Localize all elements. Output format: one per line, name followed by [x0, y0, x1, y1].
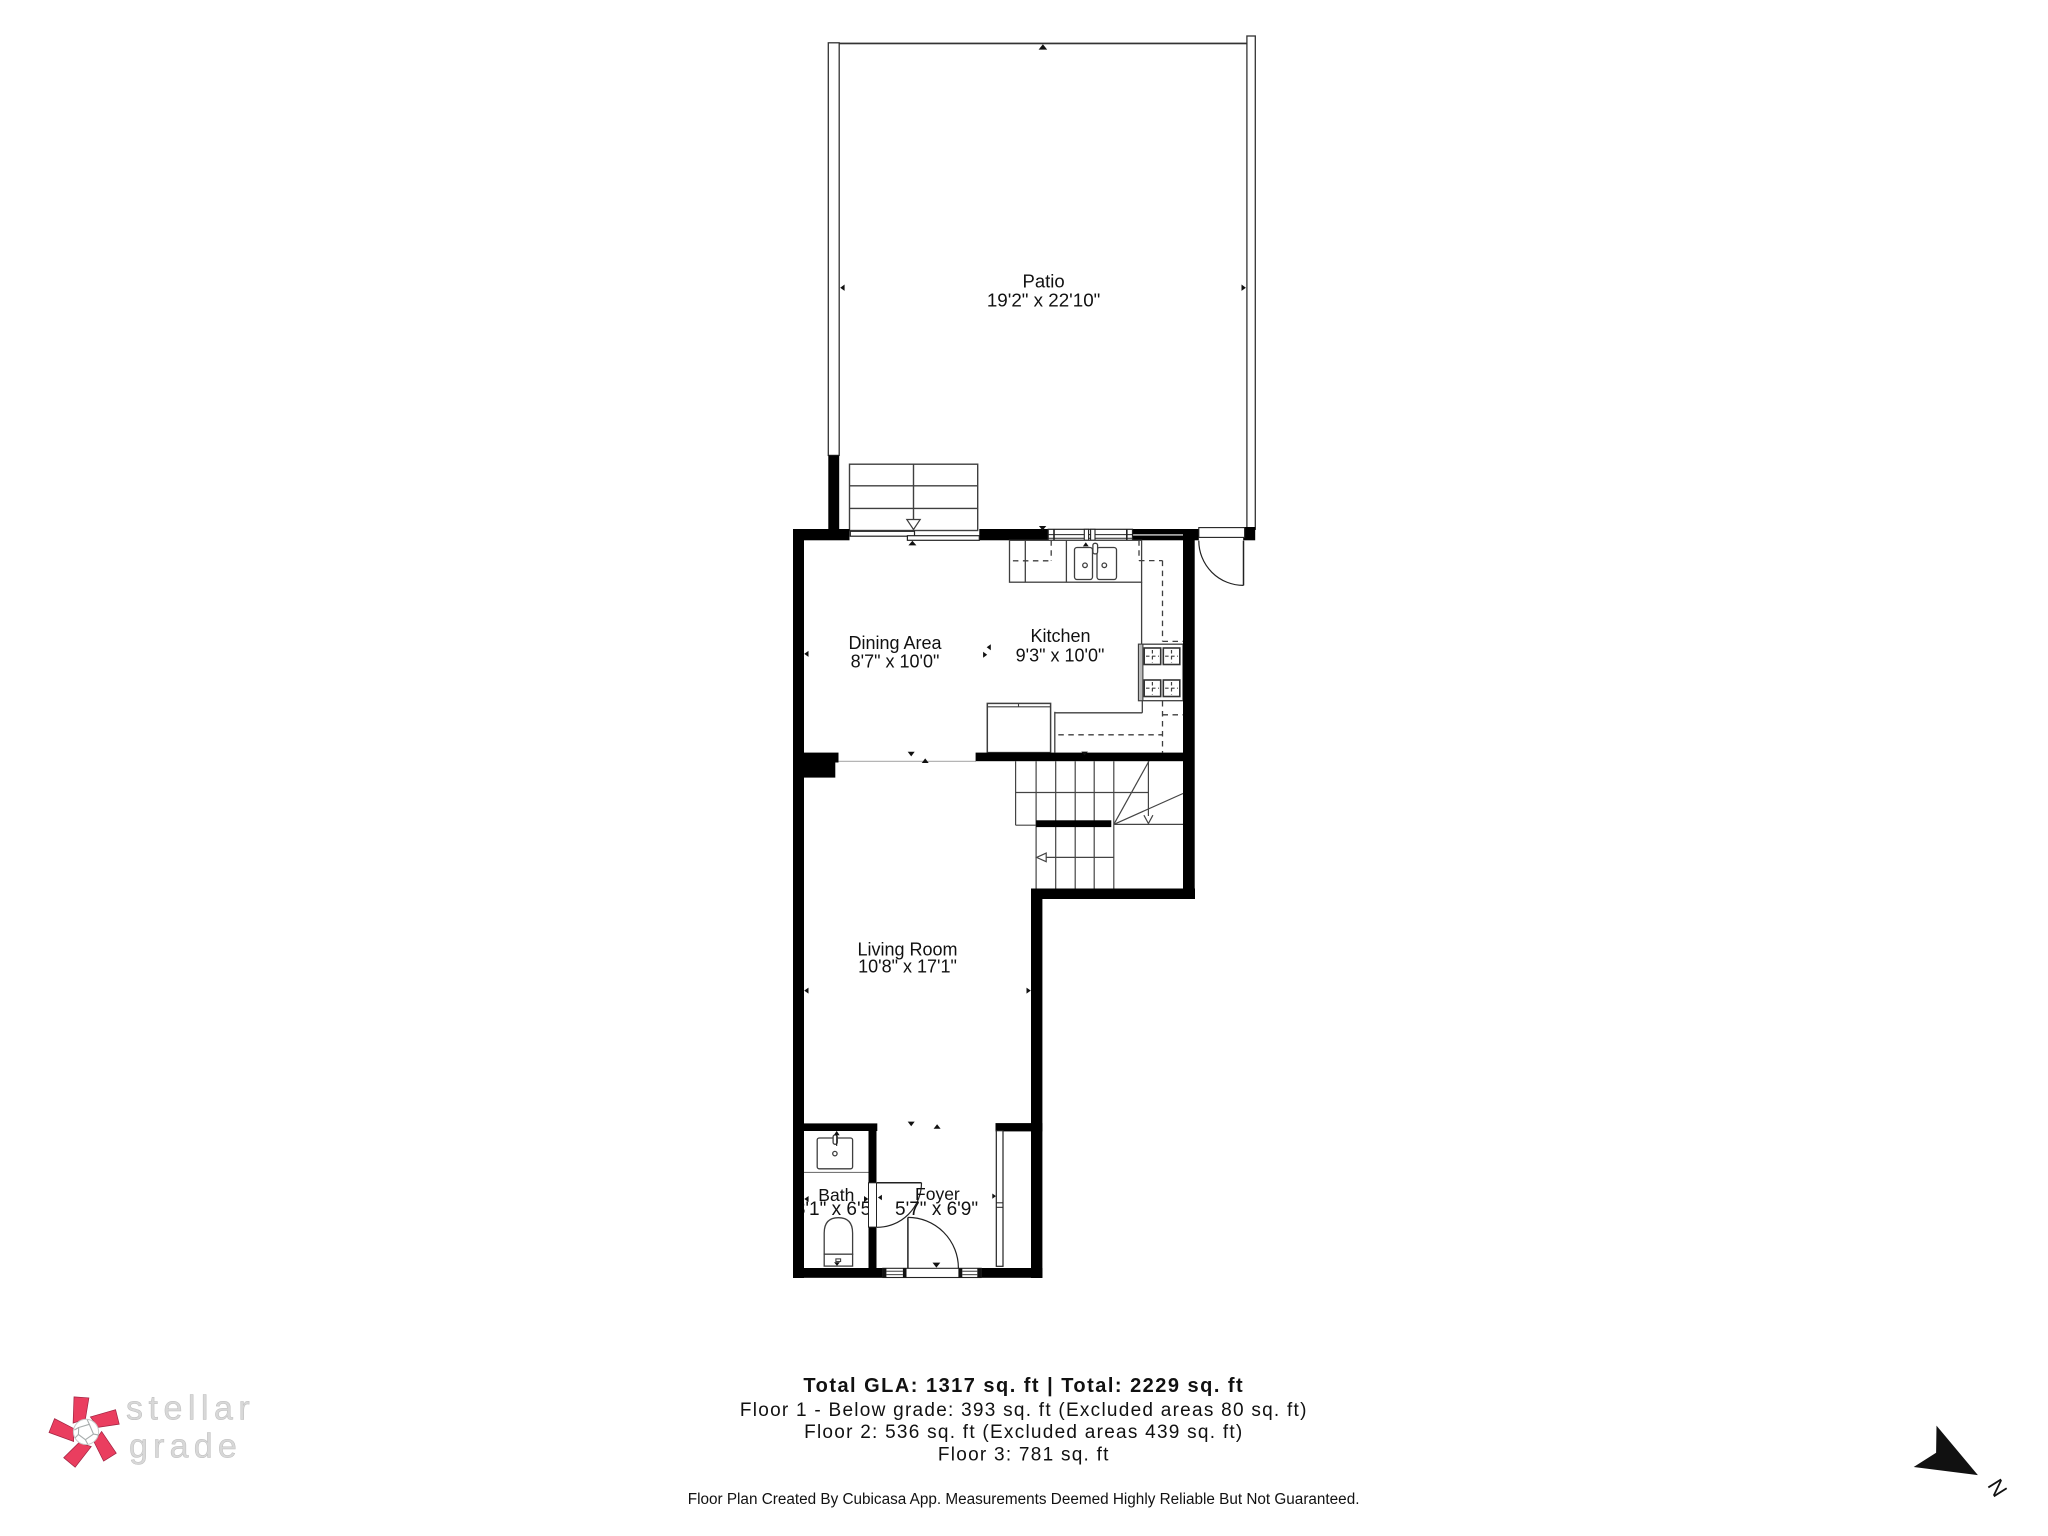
- svg-text:9'3" x 10'0": 9'3" x 10'0": [1016, 646, 1105, 666]
- svg-text:5'7" x 6'9": 5'7" x 6'9": [895, 1199, 978, 1220]
- svg-text:Floor 3: 781 sq. ft: Floor 3: 781 sq. ft: [938, 1444, 1110, 1465]
- svg-text:Dining Area: Dining Area: [848, 633, 942, 653]
- svg-text:Total GLA: 1317 sq. ft | Total: Total GLA: 1317 sq. ft | Total: 2229 sq.…: [803, 1375, 1244, 1397]
- svg-text:Patio: Patio: [1023, 271, 1065, 292]
- svg-text:Floor Plan Created By Cubicasa: Floor Plan Created By Cubicasa App. Meas…: [688, 1491, 1360, 1508]
- svg-text:10'8" x 17'1": 10'8" x 17'1": [858, 957, 957, 977]
- svg-text:Kitchen: Kitchen: [1030, 626, 1090, 646]
- svg-text:grade: grade: [129, 1428, 242, 1466]
- svg-text:19'2" x 22'10": 19'2" x 22'10": [987, 290, 1100, 311]
- svg-text:Floor 1 - Below grade: 393 sq.: Floor 1 - Below grade: 393 sq. ft (Exclu…: [740, 1400, 1308, 1421]
- svg-text:8'7" x 10'0": 8'7" x 10'0": [851, 651, 940, 671]
- svg-text:Bath: Bath: [818, 1185, 854, 1205]
- svg-text:Floor 2: 536 sq. ft (Excluded: Floor 2: 536 sq. ft (Excluded areas 439 …: [804, 1422, 1243, 1443]
- svg-text:stellar: stellar: [126, 1390, 255, 1428]
